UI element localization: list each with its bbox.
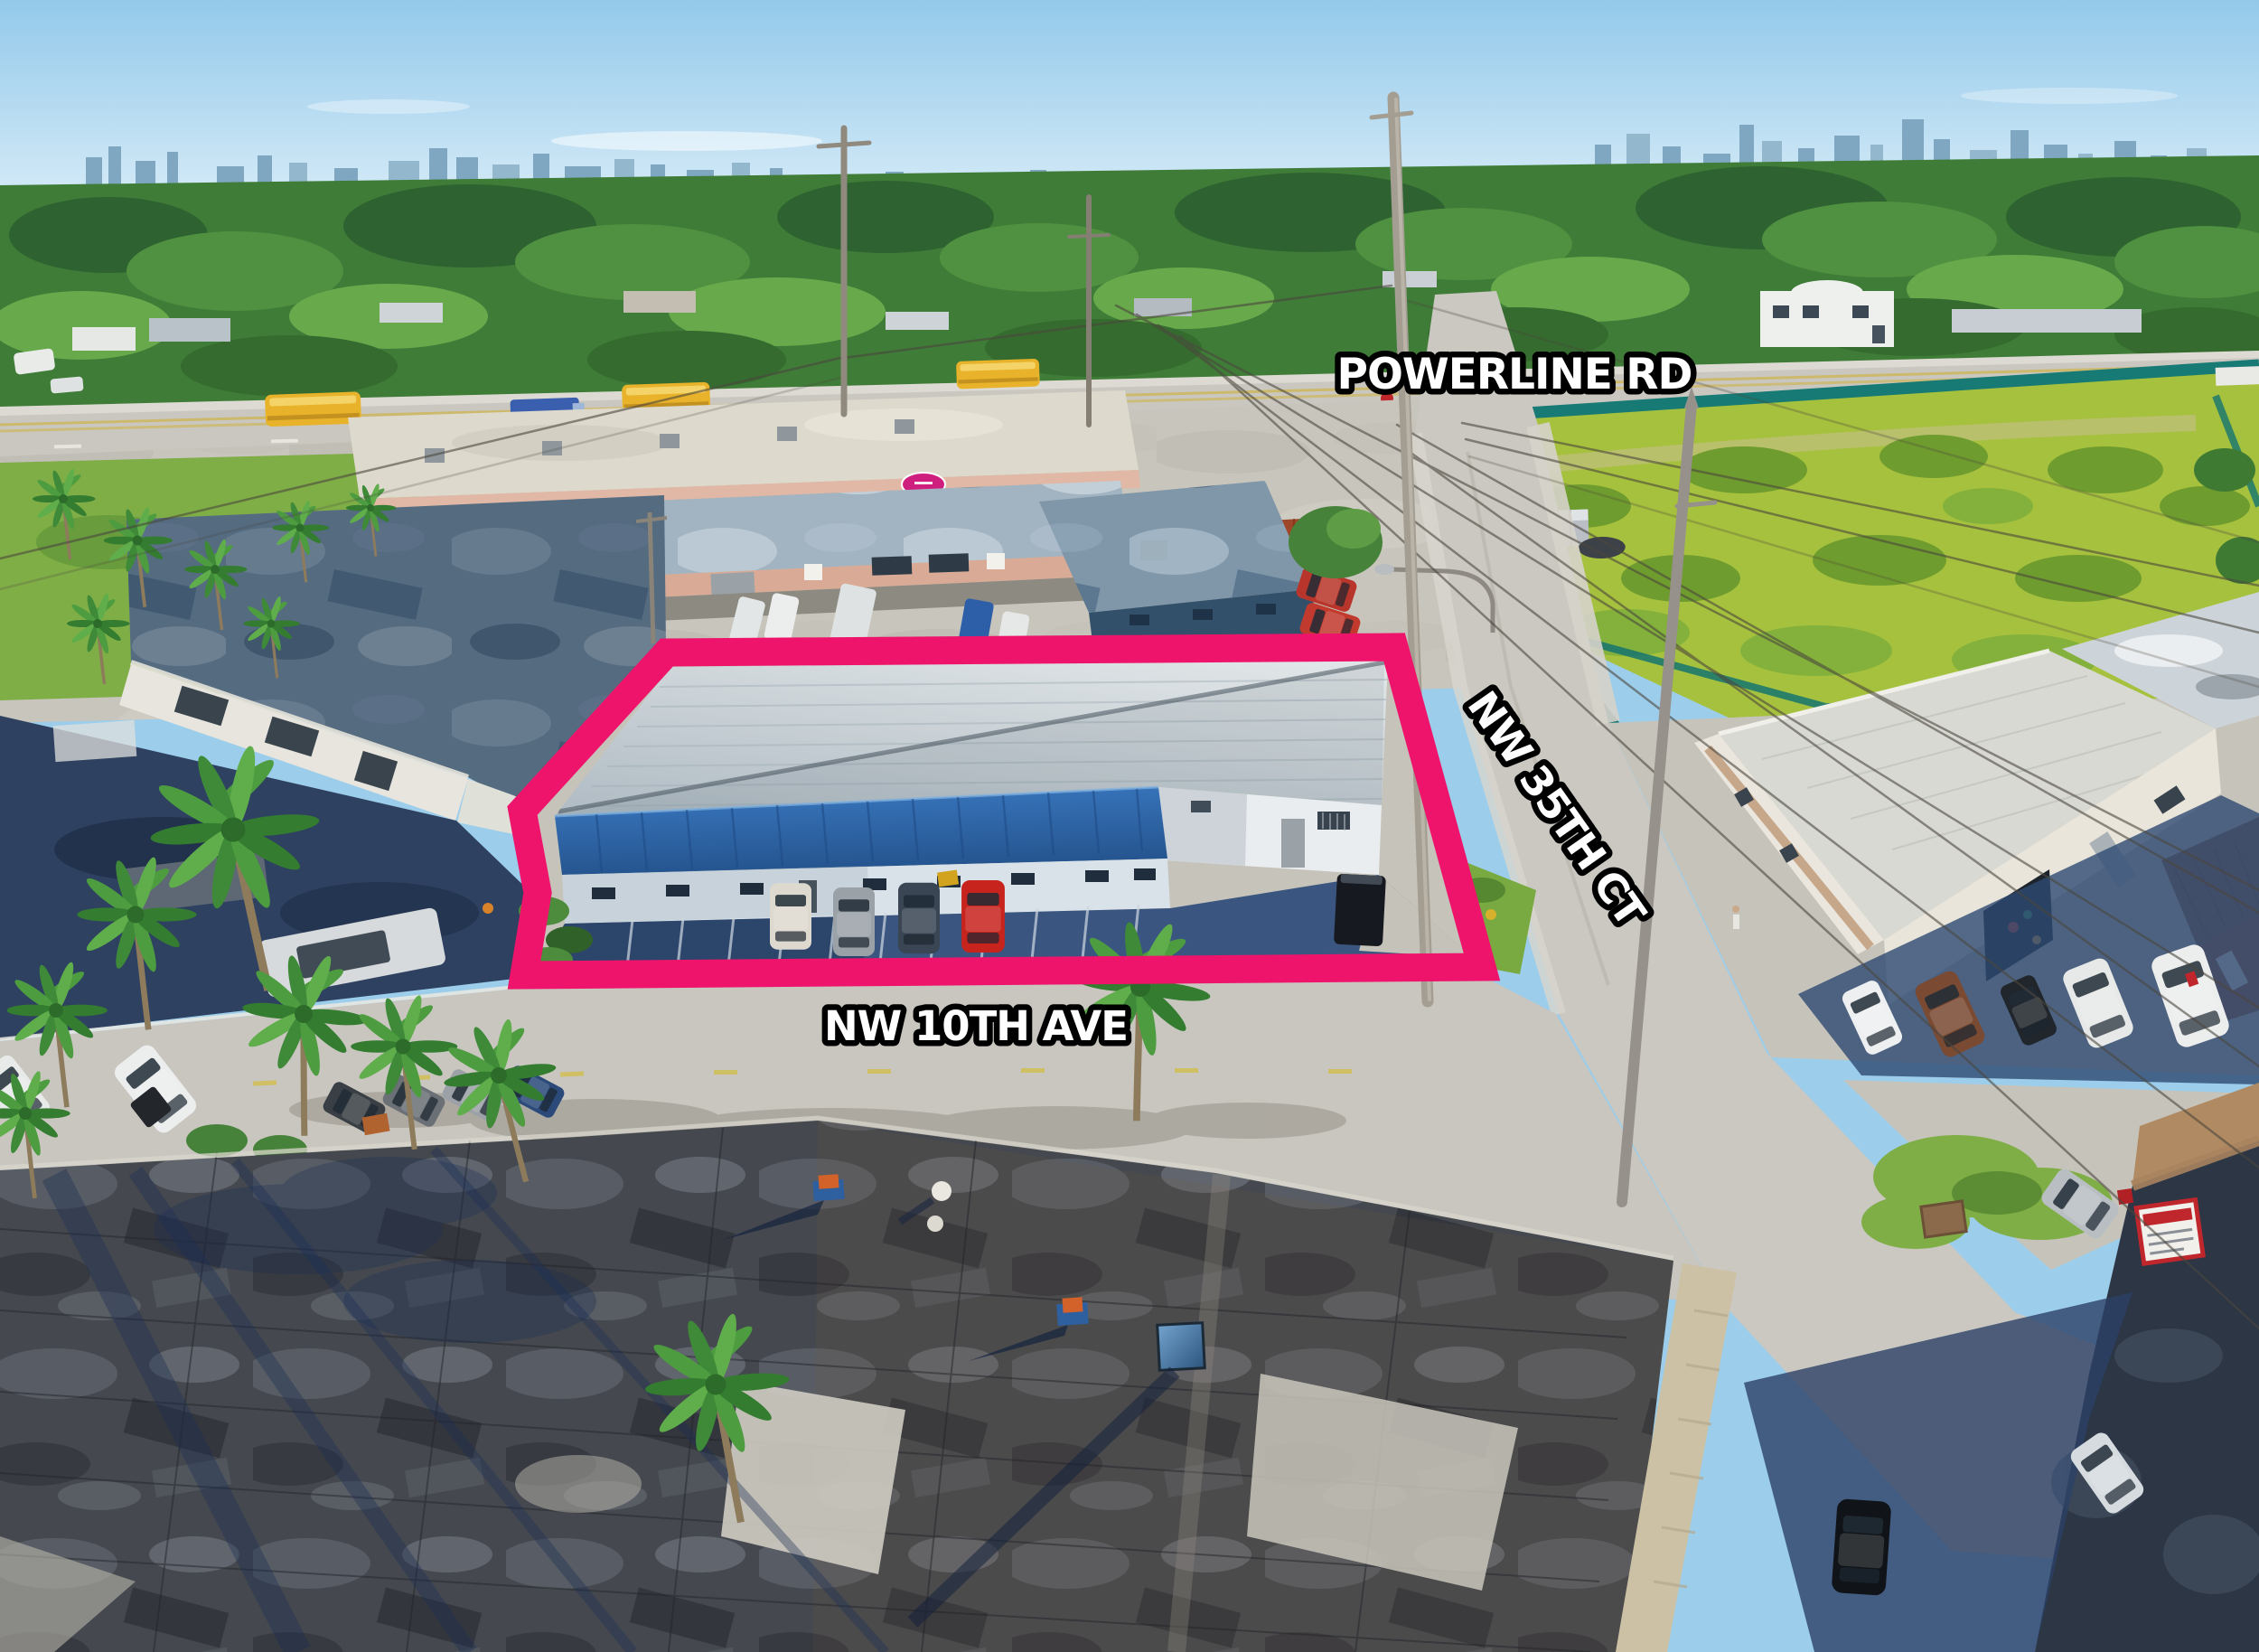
person: [1732, 906, 1739, 929]
box-truck-black: [1334, 874, 1386, 947]
wall-sign: [2136, 1200, 2203, 1264]
label-nw-10th-ave: NW 10TH AVE: [824, 1002, 1128, 1050]
skylight: [1158, 1323, 1205, 1371]
parked-truck-red: [961, 880, 1005, 953]
cloud: [551, 131, 822, 151]
subject-warehouse-roof: [555, 660, 1392, 816]
fire-hydrant: [1486, 909, 1496, 920]
parked-sedan-gray: [833, 887, 875, 956]
subject-property: [519, 647, 1482, 975]
aerial-photo: POWERLINE RD NW 35TH CT NW 10TH AVE: [0, 0, 2259, 1652]
school-bus: [956, 359, 1040, 390]
school-bus: [265, 391, 361, 427]
label-powerline-rd: POWERLINE RD: [1337, 350, 1692, 399]
black-suv: [1832, 1498, 1892, 1596]
white-trailer: [2216, 366, 2259, 386]
parked-suv-white: [770, 883, 811, 950]
parked-sedan-dark: [898, 883, 940, 953]
